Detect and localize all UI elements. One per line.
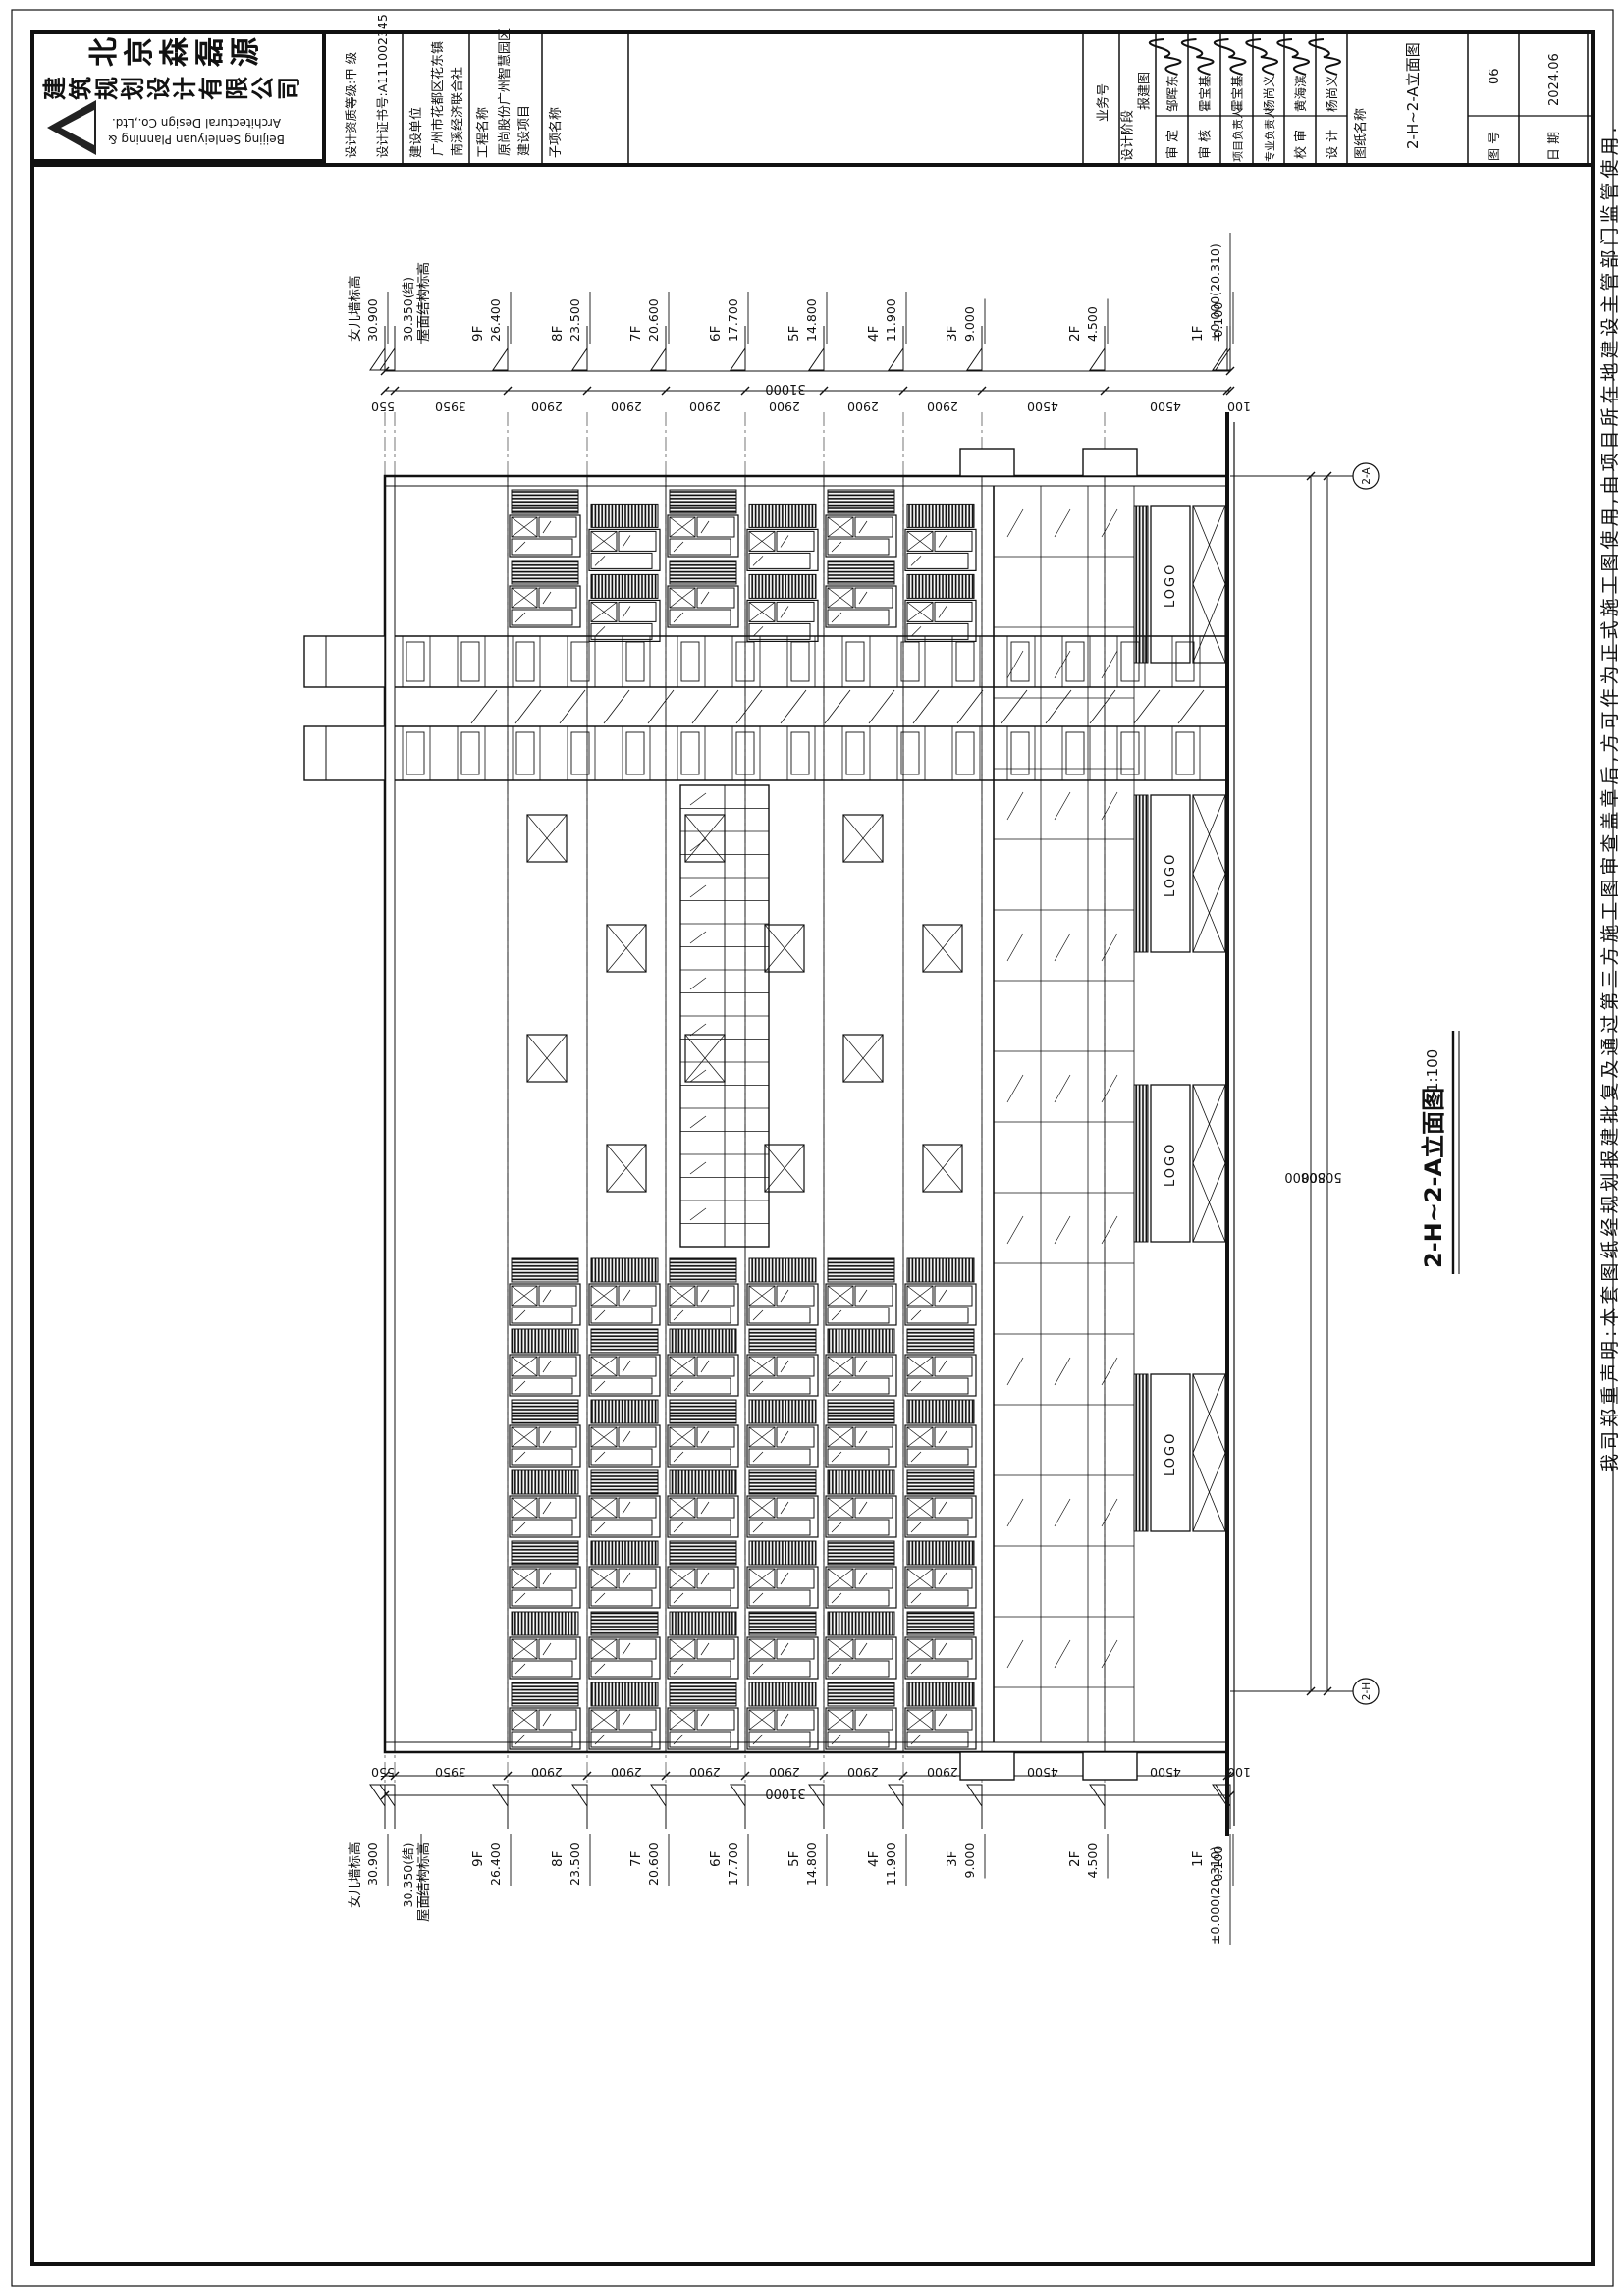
roof-bulkhead [304,726,385,780]
line [832,1310,841,1320]
storefront-glass-glyph [1102,1075,1117,1102]
line [515,1593,525,1603]
louver-panel [907,1258,974,1282]
shaft-glass-glyph [690,1208,706,1220]
level-name: 7F [628,326,644,342]
small-window [855,517,893,537]
storefront-glass-glyph [1007,1216,1023,1244]
level-value: 17.700 [726,1842,740,1886]
roof-bulkhead [304,636,385,687]
level-value: -0.100 [1211,302,1225,342]
tb-cell-label: 建设单位 [409,107,424,158]
window-group [905,529,976,570]
dim-segment-value: 4500 [1027,1765,1058,1780]
level-name: 9F [470,326,486,342]
level-name: 4F [866,1851,882,1867]
level-name: 7F [628,1851,644,1867]
window-group [589,529,660,570]
louver-panel [512,1329,578,1353]
company-name-en: Architectural Design Co.,Ltd. [112,116,281,130]
dim-segment-value: 3950 [435,400,466,414]
storefront-glass-glyph [1055,1640,1070,1668]
storefront-glass-glyph [1007,1499,1023,1526]
line [939,1361,947,1372]
dim-segment-value: 100 [1227,1765,1251,1780]
tb-field-value: 黄海滨 [1293,75,1308,112]
small-window [619,1569,656,1588]
tower-window [846,642,864,681]
glazing-hatch [1090,690,1115,723]
window-group [510,586,580,627]
louver-panel [828,1612,894,1635]
margin-declaration: 我司郑重声明:本套图纸经规划报建批复及通过第三方施工图审查盖章后,方可作为正式施… [1599,123,1621,1472]
small-window [619,1498,656,1518]
small-window [935,1286,972,1306]
line [753,626,763,636]
line [832,1452,841,1462]
level-flag-icon [1090,348,1105,370]
shopfront-diamond [1193,1085,1225,1242]
small-window [777,602,814,621]
louver-panel [749,574,816,598]
level-flag-icon [651,348,666,370]
line [543,592,551,604]
small-window [697,1710,734,1730]
level-name: 5F [786,326,802,342]
small-window [855,588,893,608]
level-flag-icon [493,348,508,370]
storefront-glass-glyph [1102,792,1117,820]
louver-panel [512,1470,578,1494]
small-window [539,1639,576,1659]
louver-panel [907,504,974,527]
tower-window [681,732,699,774]
tb-field-label: 项目负责人 [1231,108,1245,162]
tower-window [1176,642,1194,681]
small-window [619,1427,656,1447]
louver-panel [749,1329,816,1353]
window-group [905,600,976,641]
small-window [539,1286,576,1306]
line [623,1431,630,1443]
shopfront-diamond [1193,1374,1225,1531]
level-flag-icon [1213,348,1227,370]
date-label: 日 期 [1547,132,1562,161]
tower-window [956,642,974,681]
small-window [697,1498,734,1518]
level-value: 9.000 [962,1843,977,1879]
storefront-glass-glyph [1055,1216,1070,1244]
louver-panel [512,1400,578,1423]
tb-field-value: 杨尚义 [1325,75,1339,112]
shaft-glass-glyph [690,793,706,805]
small-window [619,531,656,551]
line [701,1643,709,1655]
level-name: 8F [550,326,566,342]
level-name: 6F [708,1851,724,1867]
line [701,1573,709,1584]
dim-segment-value: 4500 [1027,400,1058,414]
louver-panel [749,1258,816,1282]
window-group [668,515,738,557]
level-value: 14.800 [804,1842,819,1886]
small-window [935,602,972,621]
line [911,1310,921,1320]
grid-bubble-label: 2-H [1361,1682,1373,1700]
window-group [510,1708,580,1749]
dim-segment-value: 100 [1227,400,1251,414]
glazing-hatch [604,690,629,723]
louver-panel [907,574,974,598]
window-group [668,586,738,627]
sheet-name-value: 2-H~2-A立面图 [1404,42,1422,149]
line [701,521,709,533]
line [753,1522,763,1532]
louver-panel [670,490,736,513]
level-value: 23.500 [568,1842,582,1886]
tb-field-label: 专业负责人 [1263,108,1276,162]
line [781,1573,788,1584]
window-group [510,1355,580,1396]
line [595,626,605,636]
window-group [747,1708,818,1749]
louver-panel [670,1470,736,1494]
storefront-glass-glyph [1007,509,1023,537]
storefront-glass-glyph [1007,1358,1023,1385]
louver-panel [512,490,578,513]
louver-panel [512,1612,578,1635]
line [623,1643,630,1655]
louver-panel [749,504,816,527]
glazing-hatch [692,690,718,723]
drawing-scale: 1:100 [1424,1049,1441,1092]
tb-field-value: 霍宝基 [1198,75,1213,112]
signature-scribble [1150,39,1181,75]
line [859,1290,867,1302]
louver-panel [828,1329,894,1353]
line [515,1664,525,1674]
small-window [777,1498,814,1518]
storefront-glass-glyph [1007,792,1023,820]
louver-panel [591,1612,658,1635]
level-value: 30.900 [365,1842,380,1886]
level-name: 6F [708,326,724,342]
line [859,521,867,533]
louver-panel [749,1612,816,1635]
level-flag-icon [889,348,903,370]
louver-panel [670,1612,736,1635]
storefront-glass-glyph [1102,934,1117,961]
small-window [777,1427,814,1447]
drawing-sheet: 我司郑重声明:本套图纸经规划报建批复及通过第三方施工图审查盖章后,方可作为正式施… [0,0,1624,2296]
louver-panel [907,1329,974,1353]
line [859,1643,867,1655]
window-group [826,1637,896,1679]
window-group [510,1496,580,1537]
level-flag-icon [731,348,745,370]
small-window [697,588,734,608]
small-window [855,1286,893,1306]
small-window [539,1498,576,1518]
window-group [826,1496,896,1537]
window-group [668,1355,738,1396]
tower-window [626,642,644,681]
storefront-glass-glyph [1007,1075,1023,1102]
glazing-hatch [736,690,762,723]
tb-field-label: 审 定 [1166,130,1181,159]
small-window [539,1569,576,1588]
sheet-name-label: 图纸名称 [1353,108,1369,159]
line [753,1310,763,1320]
louver-panel [591,1682,658,1706]
louver-panel [828,1682,894,1706]
window-group [747,1425,818,1467]
grid-bubble-label: 2-A [1361,466,1373,484]
window-group [589,600,660,641]
tower-window [791,732,809,774]
small-window [935,1498,972,1518]
louver-panel [828,1541,894,1565]
level-value: 11.900 [884,298,898,342]
louver-panel [828,1258,894,1282]
level-name: 1F [1190,1851,1206,1867]
tower-window [681,642,699,681]
line [911,556,921,565]
small-window [855,1639,893,1659]
tower-window [846,732,864,774]
tb-field-value: 报建图 [1138,72,1153,110]
tower-window [791,642,809,681]
storefront-glass-glyph [1102,1358,1117,1385]
window-group [826,1708,896,1749]
shaft-glass-glyph [690,1116,706,1128]
louver-panel [670,1682,736,1706]
line [781,1643,788,1655]
line [781,1502,788,1514]
small-window [539,1357,576,1376]
line [701,1502,709,1514]
tb-cell-value: 广州市花都区花东镇 [430,41,446,156]
window-group [826,1284,896,1325]
tower-window [516,732,534,774]
shaft-glass-glyph [690,1162,706,1174]
window-group [510,515,580,557]
dim-segment-value: 2900 [531,1765,563,1780]
small-window [619,1639,656,1659]
level-value: 30.350(结) [401,277,415,342]
line [939,1643,947,1655]
dim-segment-value: 2900 [689,400,721,414]
line [939,606,947,617]
level-flag-icon [1216,348,1230,370]
dim-total-value: 31000 [765,381,805,396]
line [595,556,605,565]
line [939,1502,947,1514]
podium-fin [1083,1752,1137,1780]
small-window [777,531,814,551]
louver-panel [591,1329,658,1353]
small-window [777,1710,814,1730]
level-name: 9F [470,1851,486,1867]
line [623,1361,630,1372]
line [832,542,841,552]
shaft-glass-glyph [690,1070,706,1082]
line [595,1381,605,1391]
level-name: 屋面结构标高 [415,1842,432,1922]
level-flag-icon [967,348,982,370]
level-value: 14.800 [804,298,819,342]
line [674,1310,683,1320]
louver-panel [749,1470,816,1494]
line [781,1361,788,1372]
line [701,1361,709,1372]
dim-total-value: 31000 [765,1786,805,1800]
window-group [589,1284,660,1325]
line [543,1431,551,1443]
window-group [510,1637,580,1679]
line [543,1573,551,1584]
window-group [905,1425,976,1467]
small-window [777,1286,814,1306]
tb-cell-value: 建设项目 [517,105,532,156]
window-group [510,1425,580,1467]
shaft-glass-glyph [690,885,706,897]
louver-panel [512,561,578,584]
level-flag-icon [572,348,587,370]
line [753,1452,763,1462]
line [543,1502,551,1514]
small-window [539,1710,576,1730]
glazing-hatch [515,690,541,723]
line [623,1290,630,1302]
qualification-text: 设计资质等级:甲 级 [344,51,358,158]
louver-panel [591,574,658,598]
date-value: 2024.06 [1547,53,1562,106]
level-name: 女儿墙标高 [347,276,363,343]
dim-segment-value: 2900 [847,1765,879,1780]
line [939,535,947,547]
signature-scribble [1182,39,1214,75]
line [674,613,683,622]
dim-segment-value: 2900 [927,400,958,414]
line [911,1664,921,1674]
level-value: 4.500 [1085,306,1100,342]
louver-panel [591,504,658,527]
louver-panel [670,1329,736,1353]
level-name: 女儿墙标高 [347,1842,363,1909]
dim-segment-value: 2900 [927,1765,958,1780]
window-group [826,515,896,557]
storefront-glass-glyph [1007,651,1023,678]
window-group [905,1496,976,1537]
small-window [935,1357,972,1376]
window-group [826,586,896,627]
louver-panel [591,1400,658,1423]
line [939,1431,947,1443]
company-name-cn: 北京森磊源 [87,31,263,68]
line [543,1361,551,1372]
line [859,1573,867,1584]
louver-panel [828,1400,894,1423]
level-name: 4F [866,326,882,342]
window-group [510,1567,580,1608]
window-group [905,1637,976,1679]
line [595,1522,605,1532]
signature-scribble [1215,39,1246,75]
tower-window [901,642,919,681]
window-group [668,1567,738,1608]
louver-panel [749,1400,816,1423]
tower-window [626,732,644,774]
level-value: -0.100 [1211,1846,1225,1886]
louver-panel [749,1541,816,1565]
line [595,1452,605,1462]
line [701,592,709,604]
sheet-frame [32,32,1593,2264]
window-group [905,1355,976,1396]
level-value: 17.700 [726,298,740,342]
louver-panel [828,561,894,584]
tower-window [516,642,534,681]
small-window [935,531,972,551]
tower-window [571,642,589,681]
tower-window [1121,732,1139,774]
tower-window [461,642,479,681]
level-flag-icon [809,348,824,370]
level-value: 20.600 [646,298,661,342]
glazing-hatch [913,690,939,723]
line [623,1573,630,1584]
line [674,542,683,552]
shaft-glass-glyph [690,978,706,989]
small-window [777,1639,814,1659]
dim-segment-value: 4500 [1150,1765,1181,1780]
small-window [697,517,734,537]
glazing-hatch [869,690,894,723]
tb-cell-label: 工程名称 [475,107,491,158]
line [753,1664,763,1674]
level-value: 30.350(结) [401,1843,415,1908]
small-window [777,1569,814,1588]
line [543,1643,551,1655]
storefront-glass-glyph [1055,1358,1070,1385]
louver-panel [670,1541,736,1565]
storefront-glass-glyph [1055,509,1070,537]
louver-panel [749,1682,816,1706]
tb-cell-value: 南溪经济联合社 [450,67,465,156]
tower-window [901,732,919,774]
line [939,1573,947,1584]
line [753,1593,763,1603]
glazing-hatch [825,690,850,723]
shaft-glass-glyph [690,932,706,943]
louver-panel [512,1682,578,1706]
small-window [935,1710,972,1730]
level-name: 2F [1067,1851,1083,1867]
line [911,626,921,636]
line [543,1714,551,1726]
tb-field-label: 业务号 [1096,83,1111,122]
storefront-glass-glyph [1102,1499,1117,1526]
sheet-no-value: 06 [1488,68,1502,84]
window-group [747,1637,818,1679]
louver-panel [670,561,736,584]
level-value: 26.400 [488,298,503,342]
storefront-glass-glyph [1055,792,1070,820]
line [674,1593,683,1603]
level-name: 8F [550,1851,566,1867]
line [832,613,841,622]
